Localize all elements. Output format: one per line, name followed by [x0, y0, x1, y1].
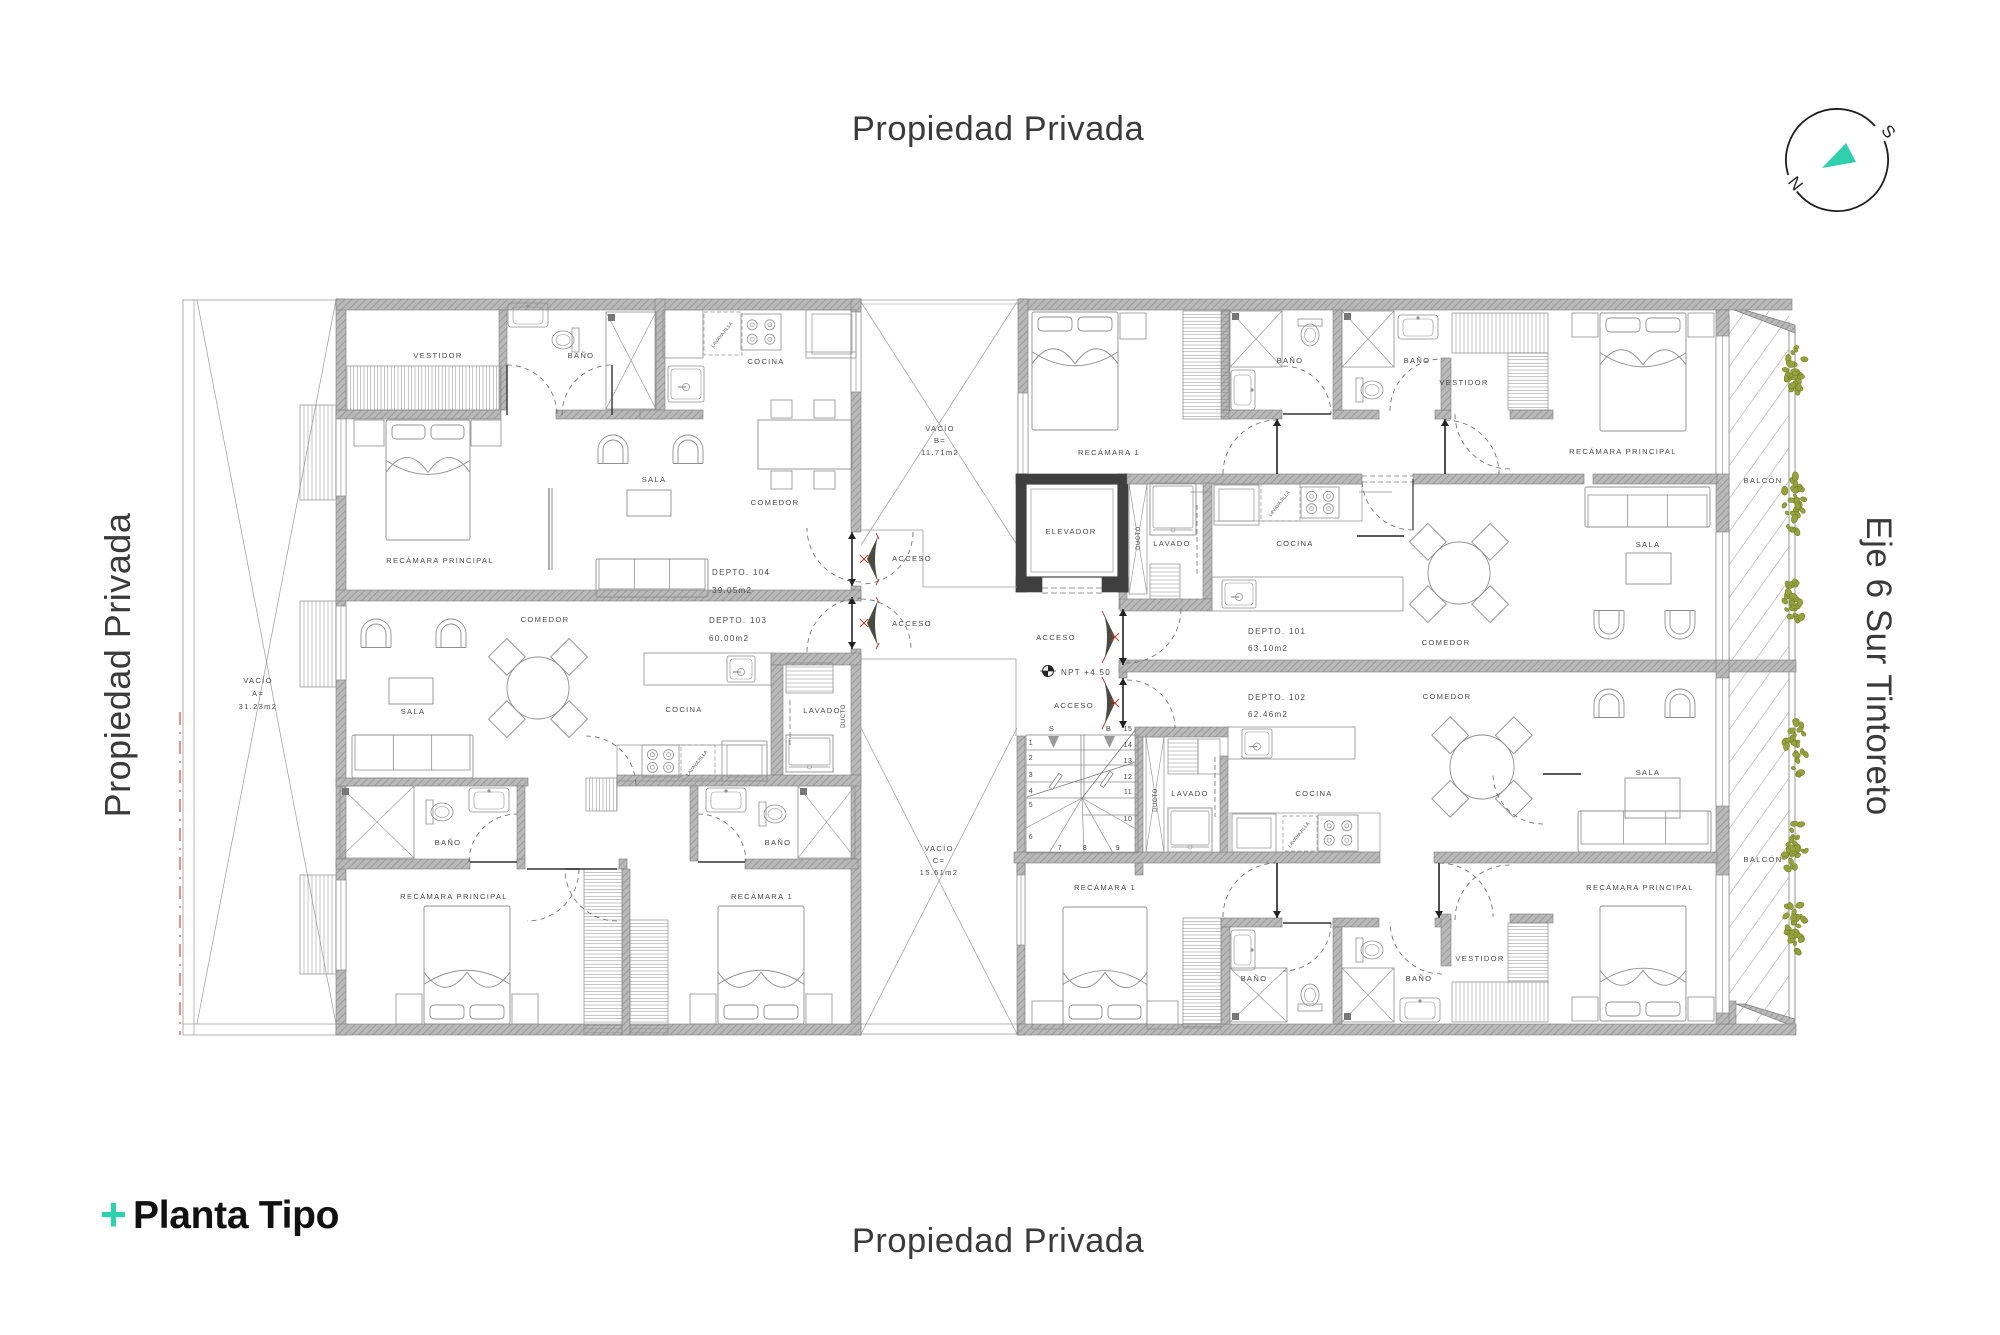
svg-text:S: S [1049, 724, 1055, 733]
svg-text:RECÁMARA 1: RECÁMARA 1 [1078, 448, 1140, 457]
svg-text:39.05m2: 39.05m2 [712, 586, 752, 595]
svg-text:+: + [100, 1188, 127, 1240]
svg-text:BAÑO: BAÑO [1404, 356, 1431, 365]
svg-text:9: 9 [1116, 845, 1120, 852]
svg-text:NPT +4.50: NPT +4.50 [1061, 668, 1111, 677]
svg-text:B: B [1106, 724, 1112, 733]
svg-text:LAVADO: LAVADO [803, 706, 840, 715]
svg-text:ACCESO: ACCESO [1054, 701, 1094, 710]
svg-text:LAVADO: LAVADO [1171, 789, 1208, 798]
svg-text:7: 7 [1058, 845, 1062, 852]
svg-text:Propiedad Privada: Propiedad Privada [852, 110, 1145, 148]
svg-text:BAÑO: BAÑO [435, 838, 462, 847]
svg-text:BAÑO: BAÑO [568, 351, 595, 360]
svg-text:DEPTO. 102: DEPTO. 102 [1248, 693, 1306, 702]
svg-text:BALCÓN: BALCÓN [1743, 855, 1782, 864]
svg-text:RECÁMARA 1: RECÁMARA 1 [731, 892, 793, 901]
svg-text:BAÑO: BAÑO [1406, 974, 1433, 983]
svg-text:60.00m2: 60.00m2 [709, 634, 749, 643]
svg-text:1: 1 [1029, 740, 1033, 747]
svg-text:10: 10 [1124, 816, 1133, 823]
svg-text:3: 3 [1029, 772, 1033, 779]
svg-text:6: 6 [1029, 834, 1033, 841]
svg-text:RECÁMARA 1: RECÁMARA 1 [1074, 883, 1136, 892]
svg-text:ACCESO: ACCESO [892, 619, 932, 628]
svg-text:8: 8 [1083, 845, 1087, 852]
svg-text:BAÑO: BAÑO [765, 838, 792, 847]
svg-text:DUCTO: DUCTO [841, 704, 847, 728]
svg-text:BAÑO: BAÑO [1241, 974, 1268, 983]
svg-text:DEPTO. 101: DEPTO. 101 [1248, 627, 1306, 636]
svg-text:VACÍO: VACÍO [924, 844, 954, 853]
svg-text:DEPTO. 103: DEPTO. 103 [709, 616, 767, 625]
svg-text:DUCTO: DUCTO [1136, 526, 1142, 550]
svg-text:Propiedad Privada: Propiedad Privada [97, 512, 138, 817]
svg-text:COCINA: COCINA [665, 705, 702, 714]
svg-text:Planta Tipo: Planta Tipo [133, 1194, 339, 1237]
svg-text:LAVADO: LAVADO [1153, 539, 1190, 548]
svg-text:COMEDOR: COMEDOR [521, 615, 570, 624]
svg-text:SALA: SALA [642, 475, 667, 484]
svg-text:B=: B= [934, 436, 946, 445]
svg-text:COMEDOR: COMEDOR [1423, 692, 1472, 701]
svg-text:4: 4 [1029, 788, 1033, 795]
svg-text:SALA: SALA [1636, 540, 1661, 549]
svg-text:Propiedad Privada: Propiedad Privada [852, 1222, 1145, 1260]
svg-text:VACÍO: VACÍO [925, 424, 955, 433]
svg-text:COCINA: COCINA [747, 357, 784, 366]
svg-text:12: 12 [1124, 774, 1133, 781]
svg-text:BALCÓN: BALCÓN [1743, 476, 1782, 485]
svg-text:ELEVADOR: ELEVADOR [1045, 527, 1096, 536]
svg-text:COCINA: COCINA [1295, 789, 1332, 798]
svg-text:14: 14 [1124, 742, 1133, 749]
svg-text:RECÁMARA PRINCIPAL: RECÁMARA PRINCIPAL [1586, 883, 1694, 892]
svg-text:RECÁMARA PRINCIPAL: RECÁMARA PRINCIPAL [1569, 447, 1677, 456]
svg-text:DUCTO: DUCTO [1153, 788, 1159, 812]
svg-text:15: 15 [1124, 726, 1133, 733]
svg-text:2: 2 [1029, 755, 1033, 762]
svg-text:31.23m2: 31.23m2 [239, 702, 278, 711]
svg-text:ACCESO: ACCESO [892, 554, 932, 563]
svg-text:BAÑO: BAÑO [1277, 356, 1304, 365]
svg-text:COMEDOR: COMEDOR [751, 498, 800, 507]
svg-text:SALA: SALA [1636, 768, 1661, 777]
svg-text:COMEDOR: COMEDOR [1422, 638, 1471, 647]
svg-text:62.46m2: 62.46m2 [1248, 710, 1288, 719]
svg-text:RECÁMARA PRINCIPAL: RECÁMARA PRINCIPAL [386, 556, 494, 565]
svg-text:13: 13 [1124, 758, 1133, 765]
svg-text:ACCESO: ACCESO [1036, 633, 1076, 642]
svg-text:A=: A= [252, 689, 264, 698]
svg-text:11.71m2: 11.71m2 [921, 448, 959, 457]
svg-text:SALA: SALA [401, 707, 426, 716]
svg-text:Eje 6 Sur Tintoreto: Eje 6 Sur Tintoreto [1859, 516, 1898, 815]
svg-text:63.10m2: 63.10m2 [1248, 644, 1288, 653]
svg-text:VACÍO: VACÍO [243, 676, 273, 685]
svg-text:VESTIDOR: VESTIDOR [1455, 954, 1504, 963]
svg-text:VESTIDOR: VESTIDOR [1439, 378, 1488, 387]
svg-text:15.61m2: 15.61m2 [920, 868, 959, 877]
svg-text:C=: C= [933, 856, 946, 865]
svg-text:11: 11 [1124, 789, 1132, 796]
svg-text:VESTIDOR: VESTIDOR [413, 351, 462, 360]
svg-text:RECÁMARA PRINCIPAL: RECÁMARA PRINCIPAL [400, 892, 508, 901]
svg-text:5: 5 [1029, 802, 1033, 809]
svg-text:DEPTO. 104: DEPTO. 104 [712, 568, 770, 577]
svg-text:COCINA: COCINA [1276, 539, 1313, 548]
